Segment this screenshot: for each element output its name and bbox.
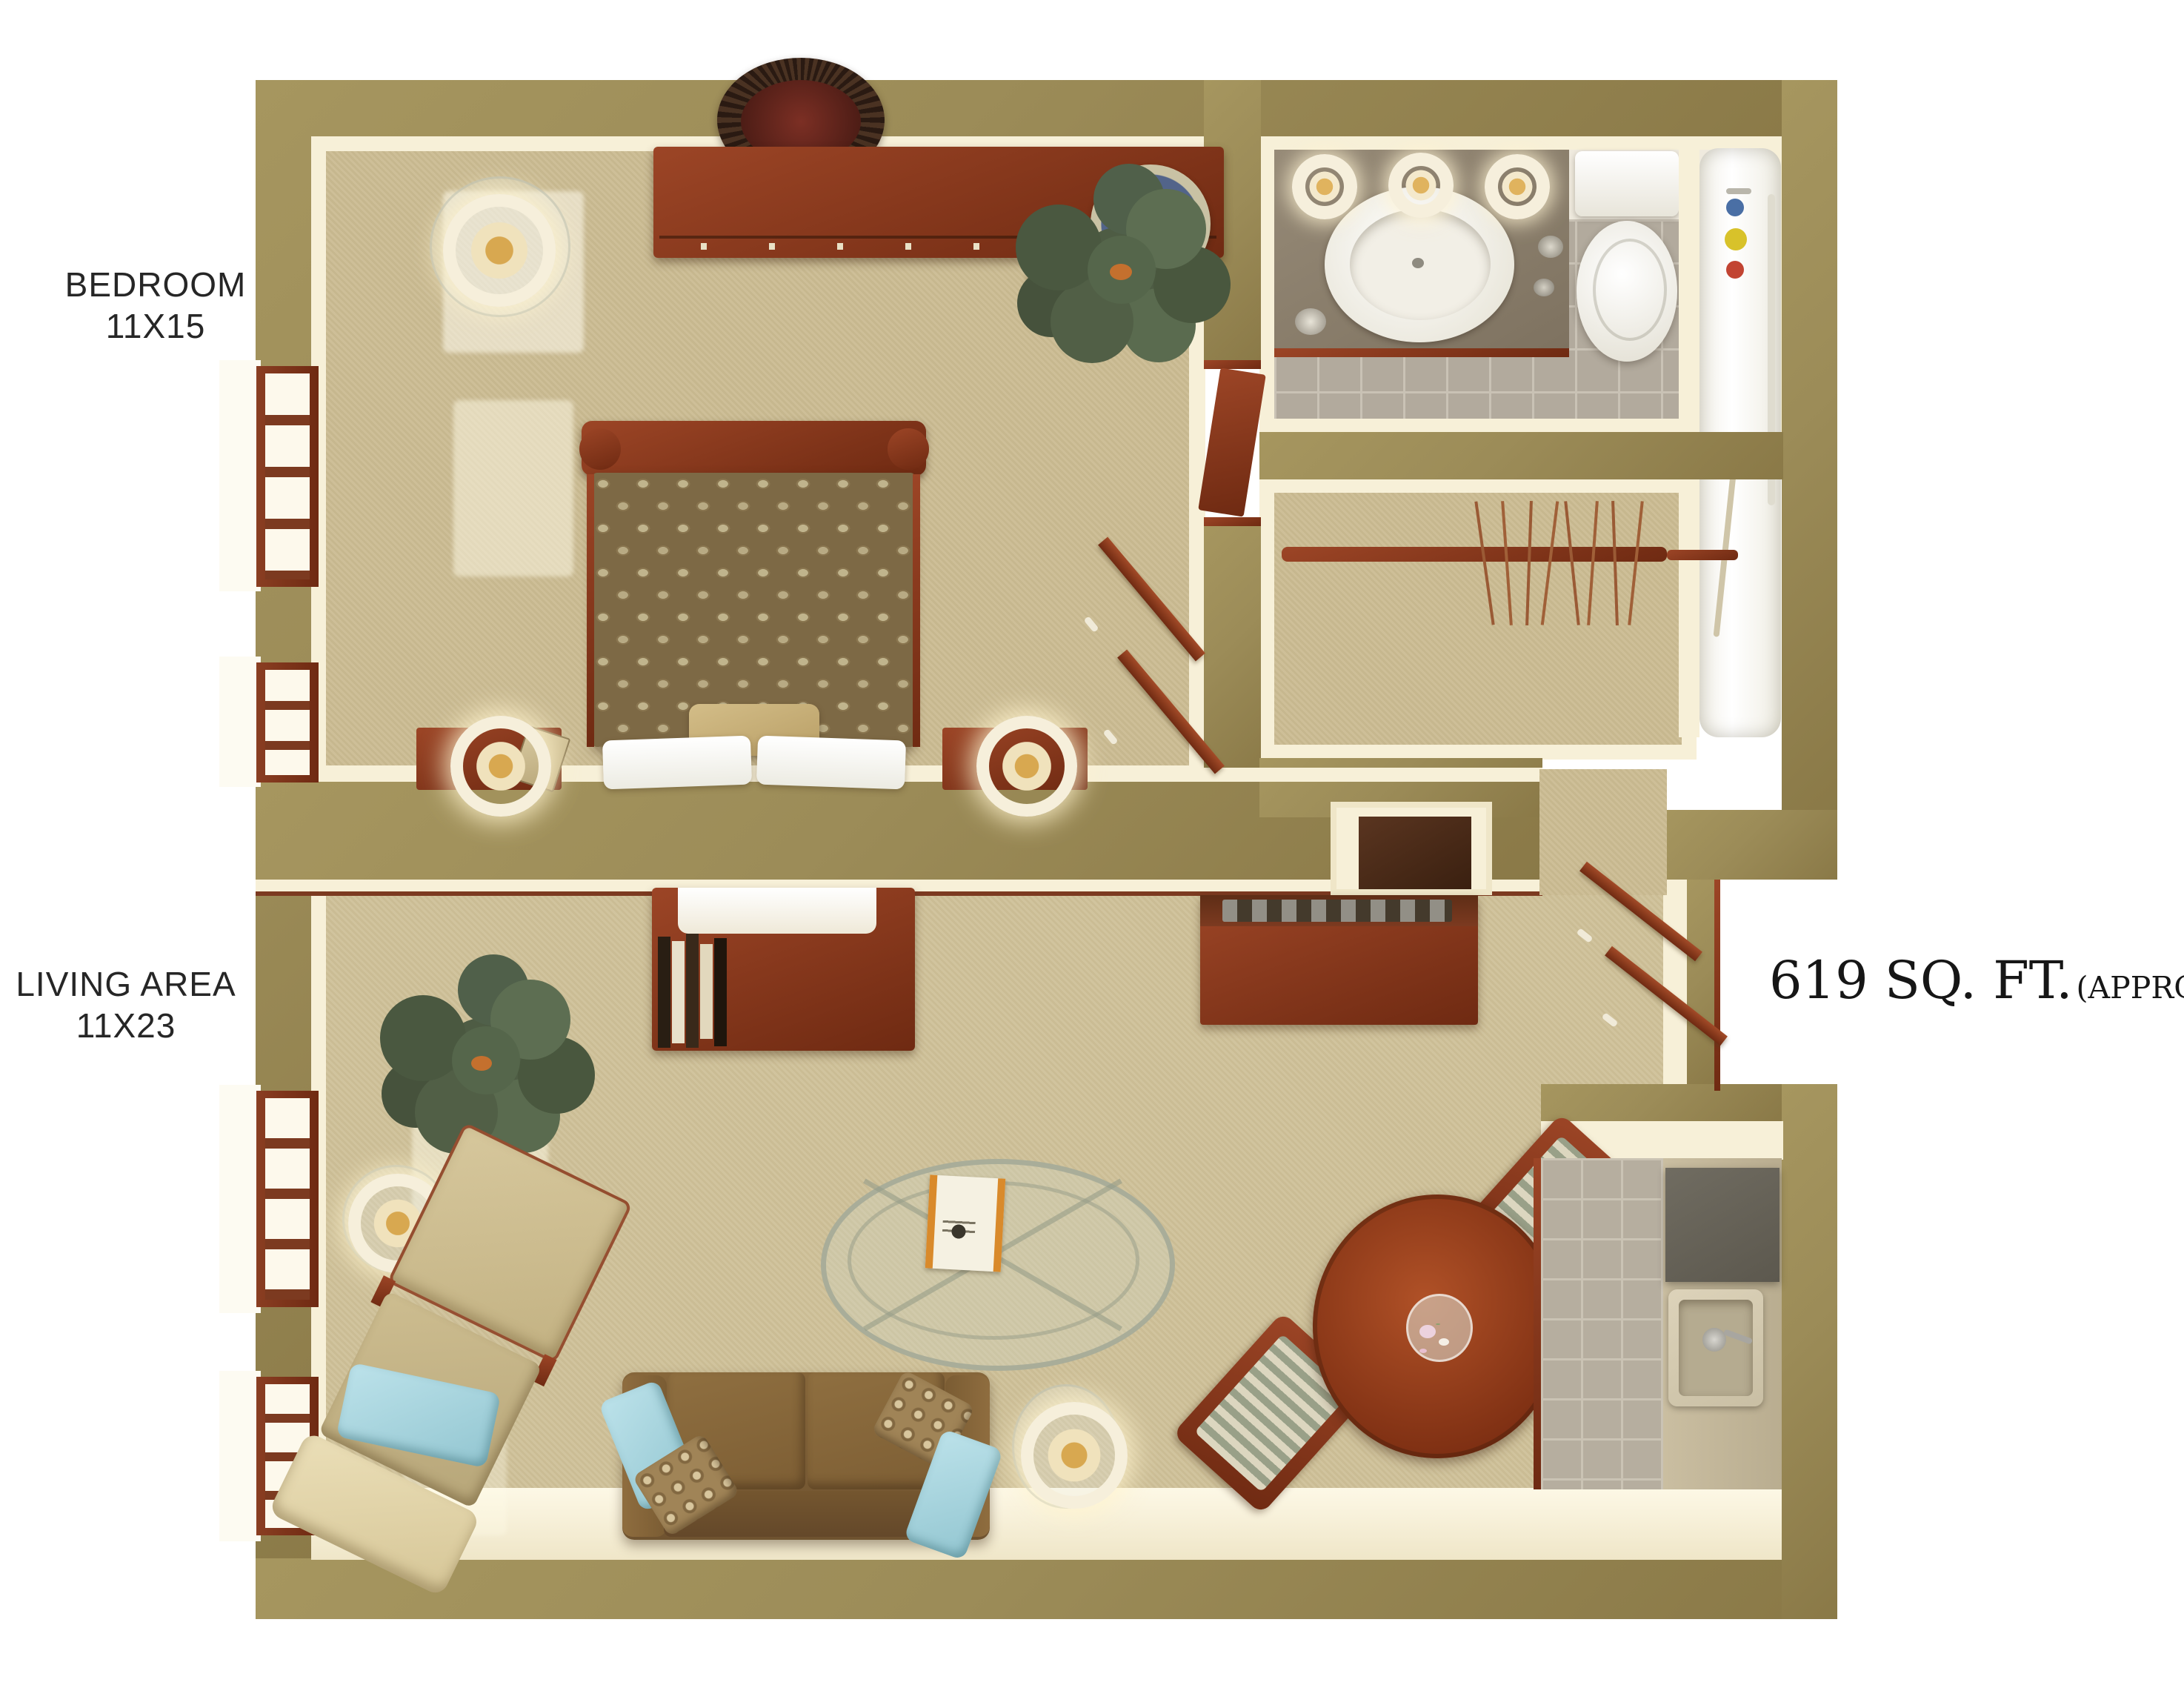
console-knobs — [1222, 900, 1452, 922]
bed-pillow-right — [756, 736, 906, 790]
kitchen-tile — [1541, 1158, 1663, 1489]
square-footage-label: 619 SQ. FT. (APPROX.) — [1769, 950, 2184, 1011]
nightstand-lamp-right — [976, 716, 1077, 817]
book-spine — [658, 937, 670, 1048]
toilet-tank — [1575, 151, 1679, 216]
bedroom-label: BEDROOM 11X15 — [44, 264, 267, 347]
kitchen-floor-edge-trim — [1534, 1158, 1541, 1489]
shampoo-bottle-blue — [1726, 199, 1744, 216]
alcove-cabinet — [1359, 817, 1471, 889]
vanity-light-1 — [1292, 154, 1357, 219]
floor-plan-canvas: BEDROOM 11X15 LIVING AREA 11X23 619 SQ. … — [0, 0, 2184, 1688]
vase-flowers — [1419, 1325, 1436, 1338]
bed-footboard — [582, 421, 926, 476]
sink-drain — [1412, 258, 1424, 268]
soap-dish-3 — [1534, 279, 1554, 296]
soap-dish-1 — [1295, 308, 1326, 335]
bed-footboard-finial-left — [579, 428, 621, 470]
desk-paper-blotter — [678, 888, 876, 934]
wall-right-lower — [1782, 1084, 1837, 1619]
plant-flower — [1110, 264, 1132, 280]
shampoo-bottle-red — [1726, 261, 1744, 279]
bedroom-floor-lamp — [443, 194, 556, 307]
wall-bath-closet-divider — [1259, 432, 1783, 479]
square-footage-qualifier: (APPROX.) — [2077, 970, 2184, 1006]
wall-top — [256, 80, 1837, 136]
magazine-graphic — [942, 1215, 976, 1249]
entry-wall-inner-face — [1663, 880, 1687, 1091]
wall-bottom — [256, 1558, 1837, 1619]
bed-side-rail-right — [913, 474, 920, 747]
toilet-seat — [1593, 239, 1667, 341]
shampoo-bottle-yellow — [1725, 228, 1747, 250]
desk-books — [658, 934, 732, 1052]
window-sill — [219, 657, 261, 787]
bed-footboard-finial-right — [888, 428, 929, 470]
living-floor-lamp-2 — [1021, 1402, 1128, 1509]
living-plant — [452, 1026, 520, 1094]
window-light-patch-bedroom — [453, 400, 573, 576]
closet-hanging-rod — [1282, 547, 1667, 562]
closet-rod-extension — [1667, 550, 1738, 560]
vanity-light-2 — [1388, 153, 1454, 218]
window-panes — [265, 1098, 310, 1300]
vanity-light-3 — [1485, 154, 1550, 219]
entry-door-jamb — [1714, 880, 1720, 1091]
square-footage-value: 619 SQ. FT. — [1769, 950, 2072, 1011]
window-sill — [219, 360, 261, 591]
bed-pillow-left — [602, 736, 752, 790]
shower-caddy-bar — [1726, 188, 1751, 194]
bedroom-label-dims: 11X15 — [44, 305, 267, 347]
window-panes — [265, 670, 310, 775]
kitchen-range-top — [1665, 1168, 1780, 1282]
wall-entry-upper-block — [1663, 810, 1837, 880]
window-sill — [219, 1085, 261, 1313]
book-spine — [672, 941, 685, 1043]
kitchen-faucet — [1702, 1328, 1726, 1352]
bathroom-door-leaf — [1198, 368, 1266, 516]
book-spine — [700, 944, 713, 1039]
nightstand-lamp-left — [450, 716, 551, 817]
bathroom-door-jamb-bottom — [1204, 517, 1261, 526]
bedroom-label-name: BEDROOM — [44, 264, 267, 305]
soap-dish-2 — [1538, 236, 1563, 258]
bedroom-plant — [1088, 236, 1156, 304]
wall-bedroom-bath-lower — [1204, 525, 1261, 784]
wall-kitchen-top — [1541, 1084, 1783, 1121]
bed-side-rail-left — [587, 474, 594, 747]
book-spine — [714, 938, 727, 1046]
loveseat-sofa — [622, 1372, 990, 1540]
plant-flower — [471, 1056, 492, 1071]
living-area-label: LIVING AREA 11X23 — [15, 963, 237, 1046]
window-panes — [265, 373, 310, 579]
vanity-front-edge — [1274, 348, 1569, 357]
book-spine — [686, 934, 699, 1048]
living-label-name: LIVING AREA — [15, 963, 237, 1005]
flower-vase — [1406, 1294, 1473, 1362]
wall-right-upper — [1782, 80, 1837, 814]
living-label-dims: 11X23 — [15, 1005, 237, 1046]
window-sill — [219, 1371, 261, 1541]
bathroom-door-jamb-top — [1204, 360, 1261, 369]
